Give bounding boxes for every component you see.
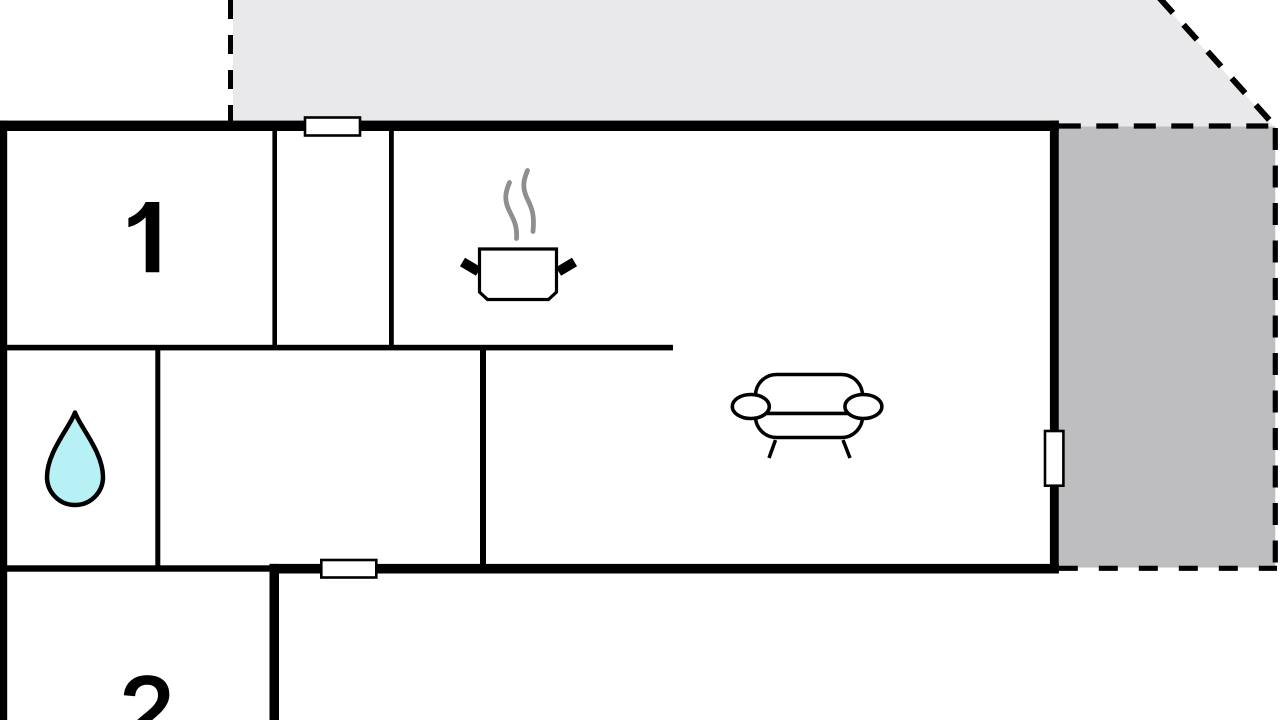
svg-text:2: 2 [120,657,174,720]
